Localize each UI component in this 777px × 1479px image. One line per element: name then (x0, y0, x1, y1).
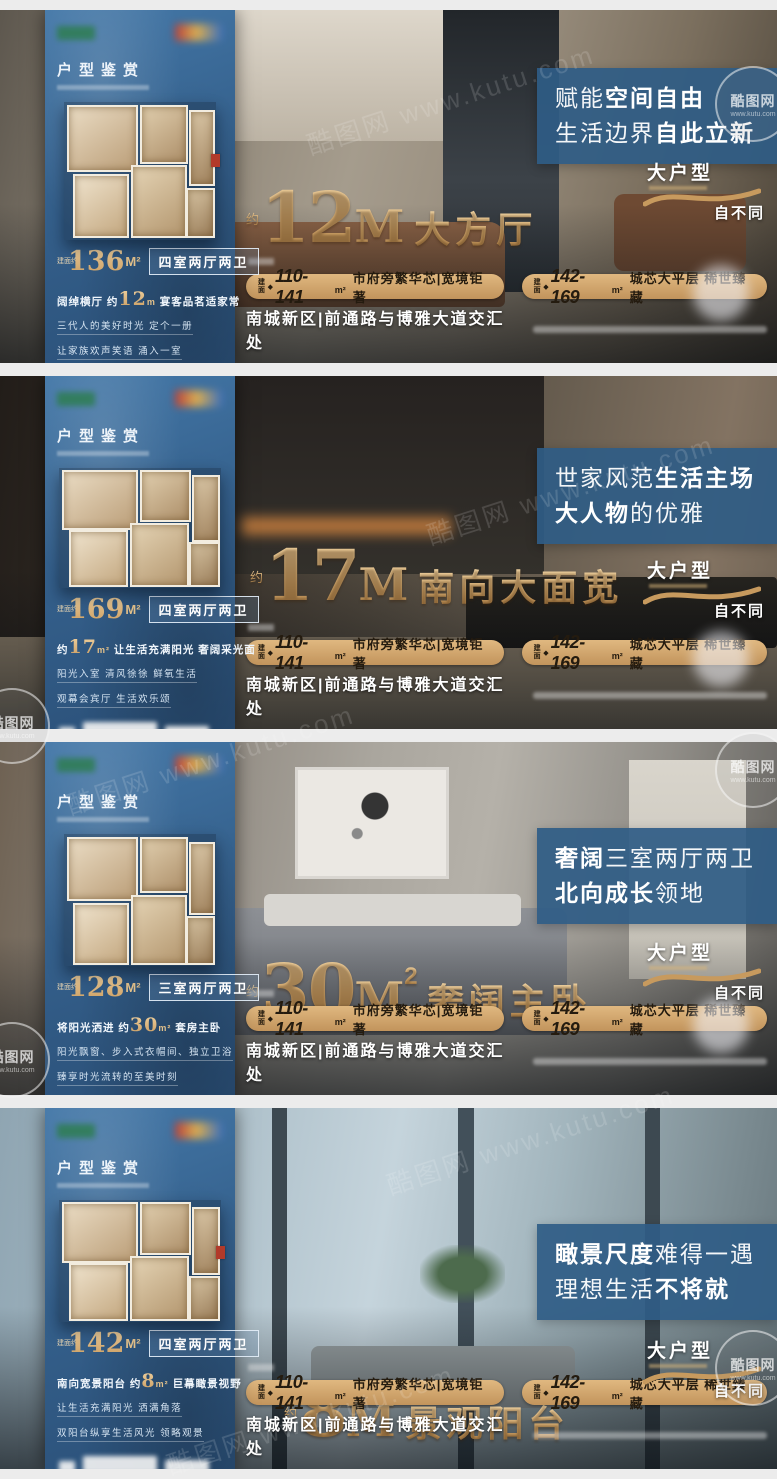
blurred-logo-1 (57, 26, 95, 40)
pill-unit: m² (612, 285, 623, 295)
brand-label: 户型鉴赏 (57, 791, 235, 812)
headline-banner-1: 赋能空间自由 生活边界自此立新 (537, 68, 777, 164)
location-text: 南城新区|前通路与博雅大道交汇处 (246, 1037, 521, 1085)
gold-number: 12 (261, 176, 354, 259)
poster-banner-4: 瞰景尺度难得一遇 理想生活不将就 大户型 自不同 约8M景观阳台 建面◆110-… (0, 1108, 777, 1469)
poster-banner-2: 世家风范生活主场 大人物的优雅 大户型 自不同 约17M南向大面宽 建面◆110… (0, 376, 777, 729)
headline-text: 领地 (655, 880, 705, 906)
area-unit: M² (125, 602, 140, 617)
feature-pre: 阔绰横厅 约 (57, 296, 118, 308)
headline-text: 生活主场 (655, 465, 755, 491)
blurred-disclaimer (533, 692, 767, 699)
floorplan-image (64, 834, 216, 966)
pill-prefix: 建面 (534, 279, 543, 294)
blurred-subtitle (57, 817, 149, 822)
blurred-logo-2 (175, 24, 223, 41)
feature-unit: m² (156, 1379, 169, 1389)
area-prefix: 建面约 (57, 1340, 66, 1348)
feature-number: 8 (141, 1370, 155, 1392)
gold-number: 17 (265, 534, 358, 617)
area-number: 142 (68, 1328, 124, 1359)
badge-subtext-blurred (649, 186, 707, 190)
feature-line: 约17m² 让生活充满阳光 奢阔采光面 (45, 636, 235, 658)
info-bar: 建面◆110-141m²市府旁繁华芯|宽境钜著 建面◆142-169m²城芯大平… (246, 640, 767, 719)
unit-area: 建面约142M² 四室两厅两卫 (45, 1328, 235, 1359)
badge-subtext-blurred (649, 1364, 707, 1368)
pill-unit: m² (612, 651, 623, 661)
blurred-logo-1 (57, 1124, 95, 1138)
pill-desc: 市府旁繁华芯|宽境钜著 (353, 268, 492, 306)
location-text: 南城新区|前通路与博雅大道交汇处 (246, 1411, 521, 1459)
diamond-icon: ◆ (543, 649, 548, 657)
headline-text: 三室两厅两卫 (605, 845, 755, 871)
blurred-hotline (59, 1456, 235, 1469)
approx-mark: 约 (246, 209, 259, 228)
pill-prefix: 建面 (534, 1011, 543, 1026)
headline-text: 赋能 (555, 85, 605, 111)
badge-subtext-blurred (649, 584, 707, 588)
headline-text: 奢阔 (555, 845, 605, 871)
diamond-icon: ◆ (543, 283, 548, 291)
headline-text: 不将就 (655, 1276, 730, 1302)
pill-desc: 市府旁繁华芯|宽境钜著 (353, 634, 492, 672)
feature-number: 30 (130, 1014, 158, 1036)
headline-text: 空间自由 (605, 85, 705, 111)
desc-line: 阳光入室 清风徐徐 鲜氧生活 (57, 666, 235, 683)
feature-line: 将阳光洒进 约30m² 套房主卧 (45, 1014, 235, 1036)
headline-text: 瞰景尺度 (555, 1241, 655, 1267)
blurred-logo-2 (175, 756, 223, 773)
info-panel: 户型鉴赏 建面约142M² 四室两厅两卫 南向宽景阳台 约8m² 巨幕瞰景视野 … (45, 1108, 235, 1469)
pill-unit: m² (335, 651, 346, 661)
desc-line: 双阳台纵享生活风光 领略观景 (57, 1425, 235, 1442)
brand-label: 户型鉴赏 (57, 59, 235, 80)
approx-mark: 约 (250, 567, 263, 586)
poster-series: 赋能空间自由 生活边界自此立新 大户型 自不同 约12M大方厅 建面◆110-1… (0, 0, 777, 1479)
blurred-disclaimer (533, 326, 767, 333)
feature-number: 12 (118, 288, 146, 310)
desc-line: 臻享时光流转的至美时刻 (57, 1069, 235, 1086)
gold-unit: M (354, 200, 404, 253)
pill-range: 142-169 (551, 1372, 611, 1414)
feature-post: 让生活充满阳光 奢阔采光面 (110, 644, 256, 656)
badge-large-unit: 大户型 自不同 (643, 158, 765, 223)
area-unit: M² (125, 254, 140, 269)
headline-text: 世家风范 (555, 465, 655, 491)
badge-line1: 大户型 (643, 556, 765, 583)
blurred-disclaimer (533, 1058, 767, 1065)
pill-prefix: 建面 (258, 645, 267, 660)
headline-text: 生活边界 (555, 120, 655, 146)
info-panel: 户型鉴赏 建面约136M² 四室两厅两卫 阔绰横厅 约12m 宴客品茗适家常 三… (45, 10, 235, 363)
pill-range: 142-169 (551, 998, 611, 1040)
pill-unit: m² (335, 1391, 346, 1401)
feature-unit: m² (97, 645, 110, 655)
badge-line2: 自不同 (643, 600, 765, 621)
feature-pre: 南向宽景阳台 约 (57, 1378, 141, 1390)
area-pill-1: 建面◆110-141m²市府旁繁华芯|宽境钜著 (246, 1006, 504, 1031)
area-number: 169 (68, 594, 124, 625)
diamond-icon: ◆ (268, 649, 273, 657)
pill-unit: m² (335, 1017, 346, 1027)
gold-headline-1: 约12M大方厅 (246, 176, 537, 259)
pill-range: 142-169 (551, 632, 611, 674)
gold-unit: M (358, 558, 408, 611)
area-pill-1: 建面◆110-141m²市府旁繁华芯|宽境钜著 (246, 274, 504, 299)
headline-text: 大人物 (555, 500, 630, 526)
desc-line: 观幕会宾厅 生活欢乐颂 (57, 691, 235, 708)
pill-unit: m² (335, 285, 346, 295)
badge-large-unit: 大户型 自不同 (643, 938, 765, 1003)
red-seal-icon (211, 154, 220, 167)
feature-post: 巨幕瞰景视野 (169, 1378, 242, 1390)
blurred-note (248, 1364, 274, 1371)
floorplan-image (64, 102, 216, 240)
unit-type: 四室两厅两卫 (149, 1330, 259, 1357)
area-prefix: 建面约 (57, 606, 66, 614)
blurred-subtitle (57, 451, 149, 456)
feature-post: 宴客品茗适家常 (156, 296, 240, 308)
gold-label: 南向大面宽 (418, 567, 623, 608)
poster-banner-3: 奢阔三室两厅两卫 北向成长领地 大户型 自不同 约30M2奢阔主卧 建面◆110… (0, 742, 777, 1095)
area-number: 136 (68, 246, 124, 277)
blurred-note (248, 624, 274, 631)
headline-banner-3: 奢阔三室两厅两卫 北向成长领地 (537, 828, 777, 924)
pill-range: 110-141 (275, 266, 334, 308)
blurred-disclaimer (533, 1432, 767, 1439)
badge-line1: 大户型 (643, 1336, 765, 1363)
developer-logos (45, 1108, 235, 1139)
area-unit: M² (125, 1336, 140, 1351)
pill-unit: m² (612, 1017, 623, 1027)
headline-text: 难得一遇 (655, 1241, 755, 1267)
developer-logos (45, 10, 235, 41)
floorplan-image (59, 468, 221, 588)
brand-label: 户型鉴赏 (57, 1157, 235, 1178)
brand-label: 户型鉴赏 (57, 425, 235, 446)
pill-prefix: 建面 (534, 1385, 543, 1400)
pill-unit: m² (612, 1391, 623, 1401)
badge-line1: 大户型 (643, 938, 765, 965)
info-panel: 户型鉴赏 建面约169M² 四室两厅两卫 约17m² 让生活充满阳光 奢阔采光面… (45, 376, 235, 729)
unit-area: 建面约169M² 四室两厅两卫 (45, 594, 235, 625)
diamond-icon: ◆ (268, 1015, 273, 1023)
pill-range: 142-169 (551, 266, 611, 308)
location-text: 南城新区|前通路与博雅大道交汇处 (246, 305, 521, 353)
blurred-stamp (693, 997, 749, 1053)
area-prefix: 建面约 (57, 258, 66, 266)
feature-line: 南向宽景阳台 约8m² 巨幕瞰景视野 (45, 1370, 235, 1392)
diamond-icon: ◆ (268, 283, 273, 291)
pill-prefix: 建面 (534, 645, 543, 660)
gold-headline-2: 约17M南向大面宽 (250, 534, 623, 617)
feature-number: 17 (69, 636, 97, 658)
blurred-logo-2 (175, 1122, 223, 1139)
blurred-logo-2 (175, 390, 223, 407)
gold-label: 大方厅 (414, 209, 537, 250)
headline-text: 的优雅 (630, 500, 705, 526)
unit-type: 三室两厅两卫 (149, 974, 259, 1001)
headline-text: 理想生活 (555, 1276, 655, 1302)
diamond-icon: ◆ (268, 1389, 273, 1397)
info-panel: 户型鉴赏 建面约128M² 三室两厅两卫 将阳光洒进 约30m² 套房主卧 阳光… (45, 742, 235, 1095)
feature-pre: 将阳光洒进 约 (57, 1022, 130, 1034)
feature-line: 阔绰横厅 约12m 宴客品茗适家常 (45, 288, 235, 310)
unit-type: 四室两厅两卫 (149, 248, 259, 275)
area-unit: M² (125, 980, 140, 995)
badge-line1: 大户型 (643, 158, 765, 185)
unit-area: 建面约136M² 四室两厅两卫 (45, 246, 235, 277)
location-text: 南城新区|前通路与博雅大道交汇处 (246, 671, 521, 719)
blurred-hotline (59, 722, 235, 729)
headline-text: 自此立新 (655, 120, 755, 146)
badge-line2: 自不同 (643, 1380, 765, 1401)
blurred-logo-1 (57, 392, 95, 406)
feature-pre: 约 (57, 644, 69, 656)
feature-unit: m² (158, 1023, 171, 1033)
unit-area: 建面约128M² 三室两厅两卫 (45, 972, 235, 1003)
pill-prefix: 建面 (258, 1385, 267, 1400)
diamond-icon: ◆ (543, 1015, 548, 1023)
area-number: 128 (68, 972, 124, 1003)
desc-line: 让生活充满阳光 洒满角落 (57, 1400, 235, 1417)
feature-unit: m (147, 297, 156, 307)
area-pill-1: 建面◆110-141m²市府旁繁华芯|宽境钜著 (246, 1380, 504, 1405)
pill-range: 110-141 (275, 1372, 334, 1414)
blurred-subtitle (57, 1183, 149, 1188)
badge-large-unit: 大户型 自不同 (643, 1336, 765, 1401)
pill-range: 110-141 (275, 998, 334, 1040)
headline-text: 北向成长 (555, 880, 655, 906)
desc-line: 阳光飘窗、步入式衣帽间、独立卫浴 (57, 1044, 235, 1061)
headline-banner-2: 世家风范生活主场 大人物的优雅 (537, 448, 777, 544)
info-bar: 建面◆110-141m²市府旁繁华芯|宽境钜著 建面◆142-169m²城芯大平… (246, 1006, 767, 1085)
desc-line: 三代人的美好时光 定个一册 (57, 318, 235, 335)
headline-banner-4: 瞰景尺度难得一遇 理想生活不将就 (537, 1224, 777, 1320)
info-bar: 建面◆110-141m²市府旁繁华芯|宽境钜著 建面◆142-169m²城芯大平… (246, 274, 767, 353)
pill-desc: 市府旁繁华芯|宽境钜著 (353, 1374, 492, 1412)
poster-banner-1: 赋能空间自由 生活边界自此立新 大户型 自不同 约12M大方厅 建面◆110-1… (0, 10, 777, 363)
blurred-subtitle (57, 85, 149, 90)
blurred-stamp (693, 265, 749, 321)
area-prefix: 建面约 (57, 984, 66, 992)
pill-range: 110-141 (275, 632, 334, 674)
pill-prefix: 建面 (258, 279, 267, 294)
desc-line: 让家族欢声笑语 涌入一室 (57, 343, 235, 360)
unit-type: 四室两厅两卫 (149, 596, 259, 623)
badge-subtext-blurred (649, 966, 707, 970)
gold-sup: 2 (404, 963, 417, 990)
blurred-stamp (693, 631, 749, 687)
pill-desc: 市府旁繁华芯|宽境钜著 (353, 1000, 492, 1038)
developer-logos (45, 742, 235, 773)
developer-logos (45, 376, 235, 407)
badge-large-unit: 大户型 自不同 (643, 556, 765, 621)
badge-line2: 自不同 (643, 982, 765, 1003)
area-pill-1: 建面◆110-141m²市府旁繁华芯|宽境钜著 (246, 640, 504, 665)
diamond-icon: ◆ (543, 1389, 548, 1397)
feature-post: 套房主卧 (171, 1022, 221, 1034)
pill-prefix: 建面 (258, 1011, 267, 1026)
blurred-logo-1 (57, 758, 95, 772)
badge-line2: 自不同 (643, 202, 765, 223)
floorplan-image (59, 1200, 221, 1322)
red-seal-icon (216, 1246, 225, 1259)
